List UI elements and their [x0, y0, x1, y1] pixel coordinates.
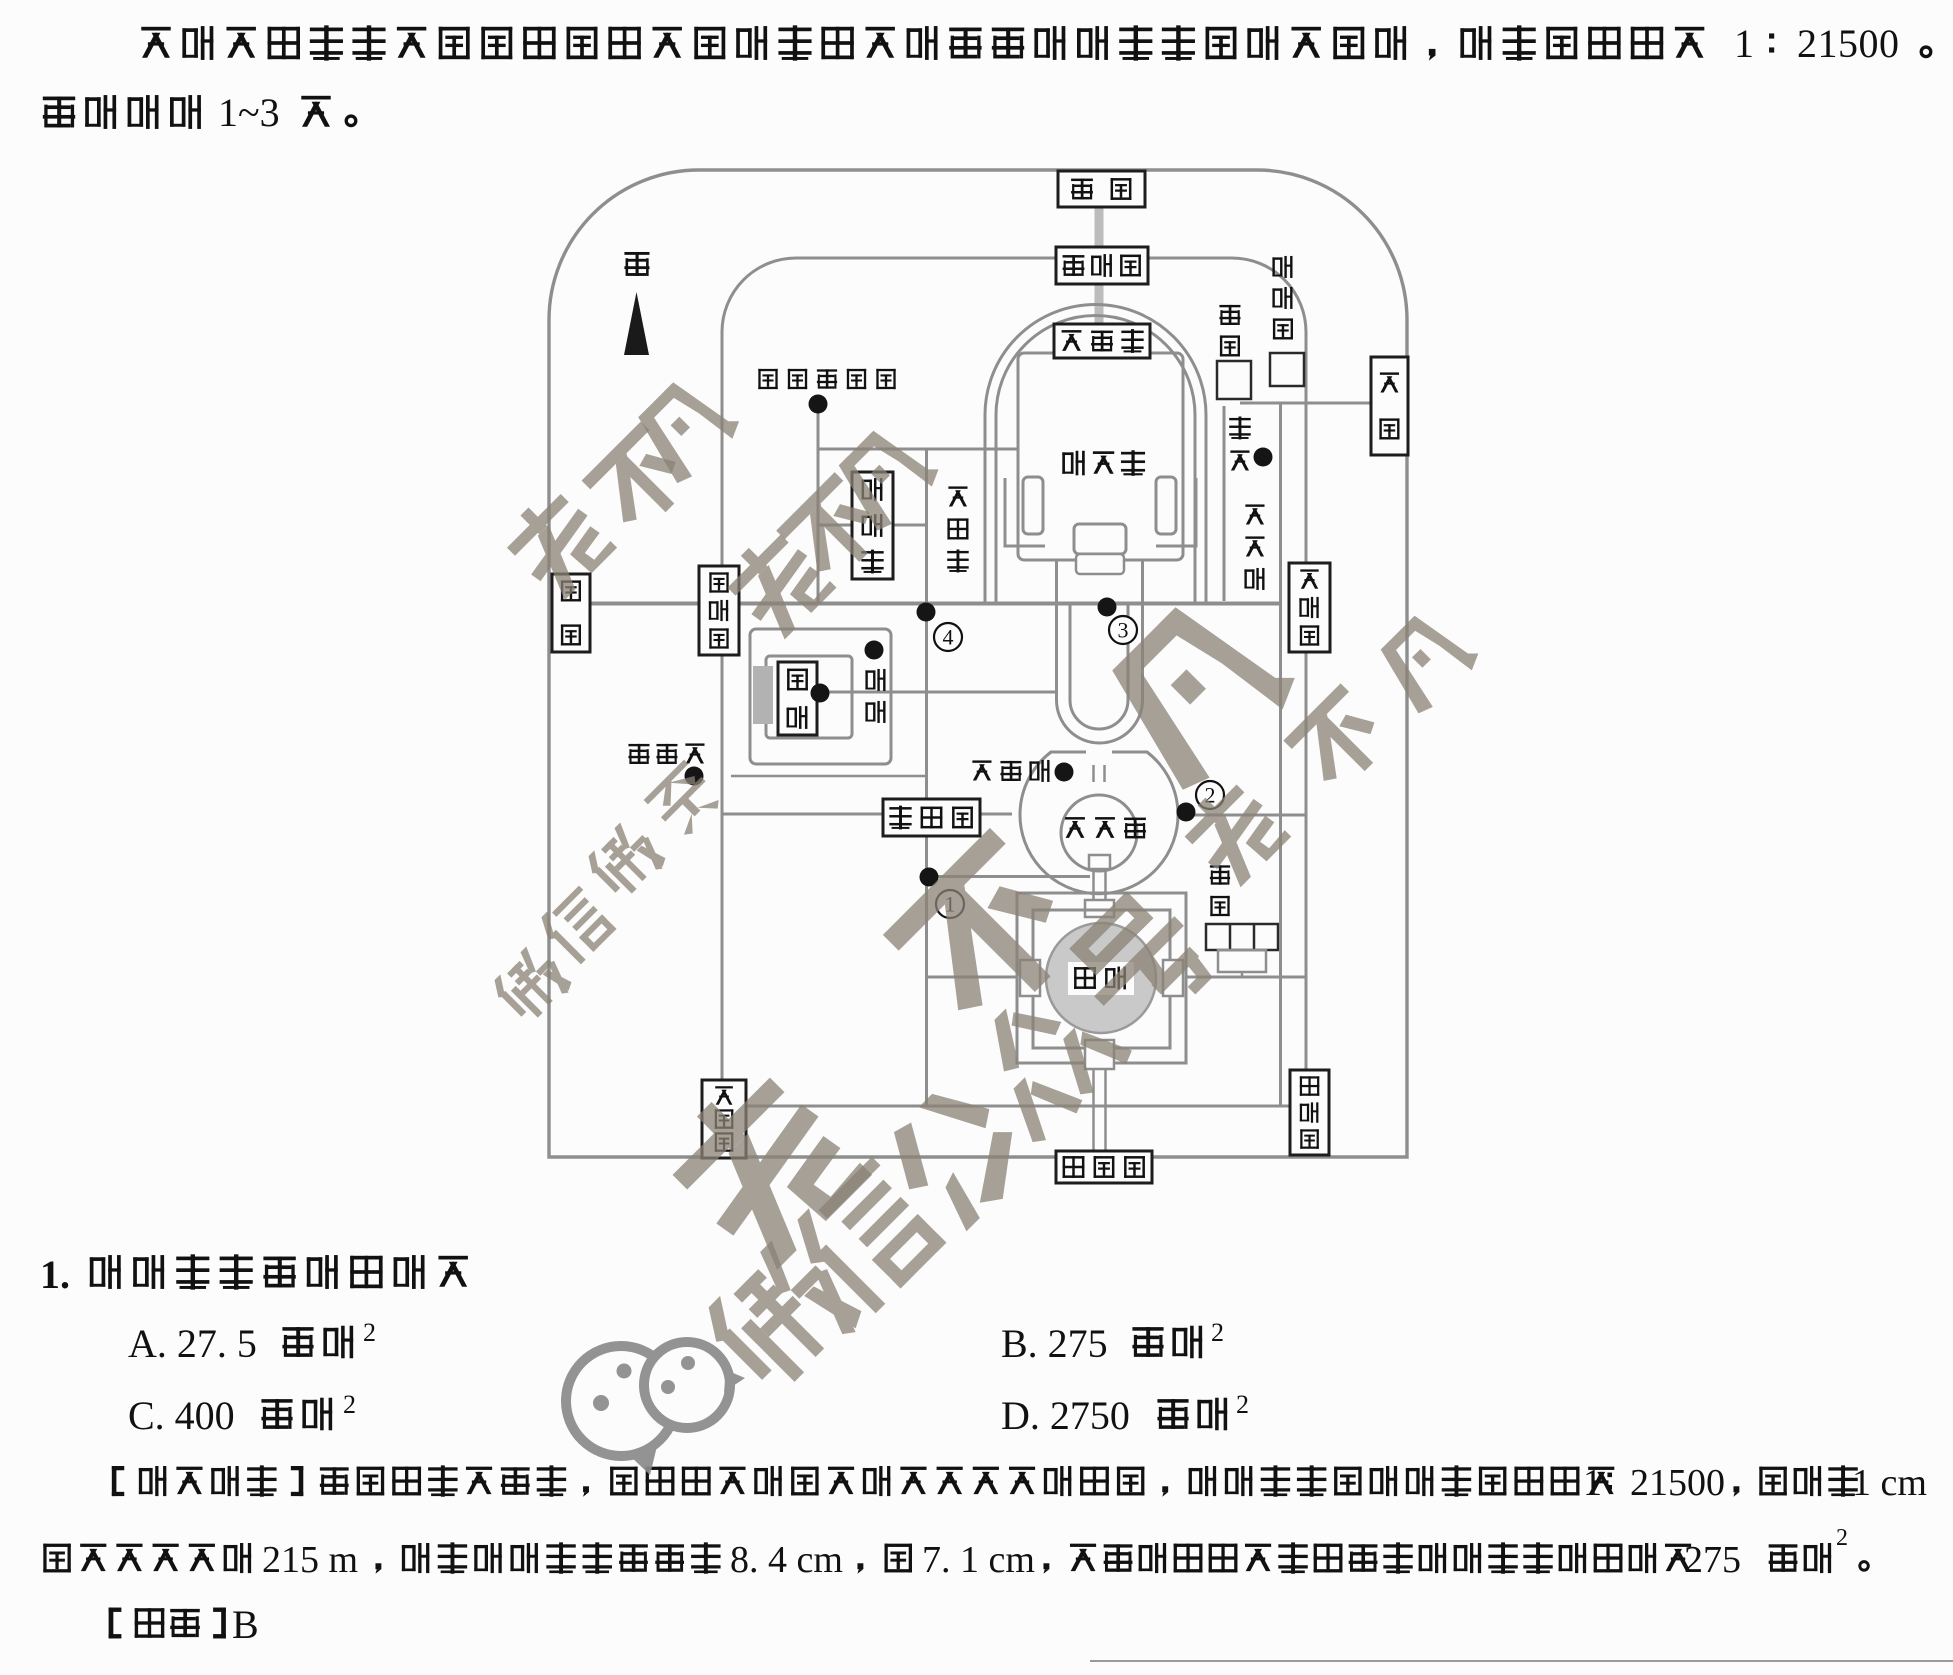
svg-text:8. 4 cm: 8. 4 cm: [730, 1539, 843, 1581]
svg-text:1: 1: [1734, 21, 1754, 66]
svg-text:3: 3: [1118, 618, 1129, 643]
svg-text:B. 275: B. 275: [1001, 1321, 1108, 1366]
svg-text:1~3: 1~3: [218, 90, 280, 135]
svg-text:2: 2: [1236, 1390, 1249, 1419]
svg-text:21500: 21500: [1797, 21, 1900, 66]
svg-text:2: 2: [363, 1318, 376, 1347]
svg-text:275: 275: [1684, 1539, 1741, 1581]
svg-text:2: 2: [343, 1390, 356, 1419]
svg-text:7. 1 cm: 7. 1 cm: [922, 1539, 1035, 1581]
svg-text:21500: 21500: [1630, 1462, 1725, 1504]
svg-text:C. 400: C. 400: [128, 1393, 235, 1438]
svg-text:1: 1: [1583, 1462, 1602, 1504]
svg-text:215 m: 215 m: [262, 1539, 358, 1581]
svg-text:A. 27. 5: A. 27. 5: [128, 1321, 257, 1366]
svg-text:2: 2: [1211, 1318, 1224, 1347]
svg-text:1 cm: 1 cm: [1852, 1462, 1927, 1504]
svg-text:B: B: [232, 1602, 259, 1647]
svg-text:4: 4: [943, 625, 954, 650]
svg-text:2: 2: [1836, 1525, 1848, 1551]
svg-text:D. 2750: D. 2750: [1001, 1393, 1130, 1438]
svg-text:1.: 1.: [40, 1252, 70, 1297]
